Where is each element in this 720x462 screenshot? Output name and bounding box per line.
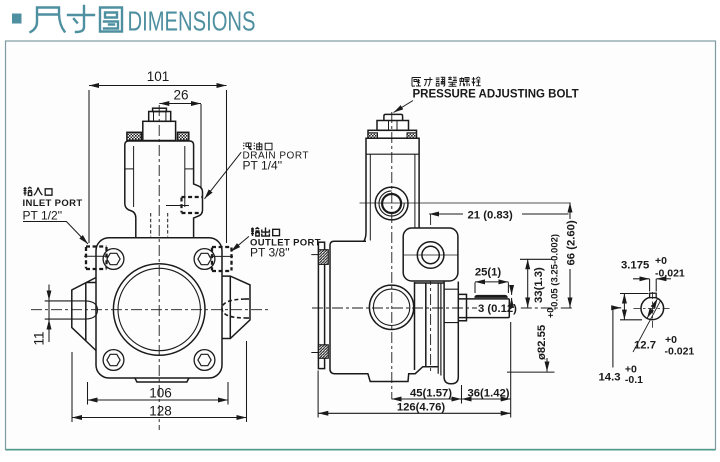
svg-text:INLET PORT: INLET PORT xyxy=(23,198,83,209)
svg-text:-0.021: -0.021 xyxy=(665,346,695,358)
svg-text:36(1.42): 36(1.42) xyxy=(467,388,509,400)
svg-text:128: 128 xyxy=(149,404,172,419)
svg-text:66 (2.60): 66 (2.60) xyxy=(566,220,578,265)
svg-text:-0.021: -0.021 xyxy=(655,268,685,280)
svg-text:-0.1: -0.1 xyxy=(625,374,643,386)
svg-text:45(1.57): 45(1.57) xyxy=(410,388,452,400)
svg-text:11: 11 xyxy=(32,331,47,345)
svg-text:21 (0.83): 21 (0.83) xyxy=(468,210,513,222)
svg-text:PT 3/8'': PT 3/8'' xyxy=(250,246,290,260)
svg-text:33(1.3): 33(1.3) xyxy=(533,267,545,303)
svg-text:PRESSURE ADJUSTING BOLT: PRESSURE ADJUSTING BOLT xyxy=(413,89,579,101)
svg-text:PT 1/2'': PT 1/2'' xyxy=(23,209,63,223)
svg-text:101: 101 xyxy=(147,69,170,84)
svg-text:126(4.76): 126(4.76) xyxy=(397,402,446,414)
svg-text:PT 1/4'': PT 1/4'' xyxy=(243,159,283,173)
svg-text:14.3: 14.3 xyxy=(599,372,621,384)
svg-text:+0: +0 xyxy=(665,334,677,346)
svg-text:106: 106 xyxy=(149,386,172,401)
svg-text:-0.05 (3.25-0.002): -0.05 (3.25-0.002) xyxy=(550,234,561,310)
svg-text:3.175: 3.175 xyxy=(621,260,649,272)
svg-text:25(1): 25(1) xyxy=(475,267,502,279)
svg-text:26: 26 xyxy=(173,88,188,103)
svg-text:ø82.55: ø82.55 xyxy=(536,325,548,360)
svg-text:3 (0.12): 3 (0.12) xyxy=(478,303,517,315)
svg-text:12.7: 12.7 xyxy=(634,340,656,352)
svg-text:+0: +0 xyxy=(655,255,667,267)
svg-text:DIMENSIONS: DIMENSIONS xyxy=(128,7,256,38)
